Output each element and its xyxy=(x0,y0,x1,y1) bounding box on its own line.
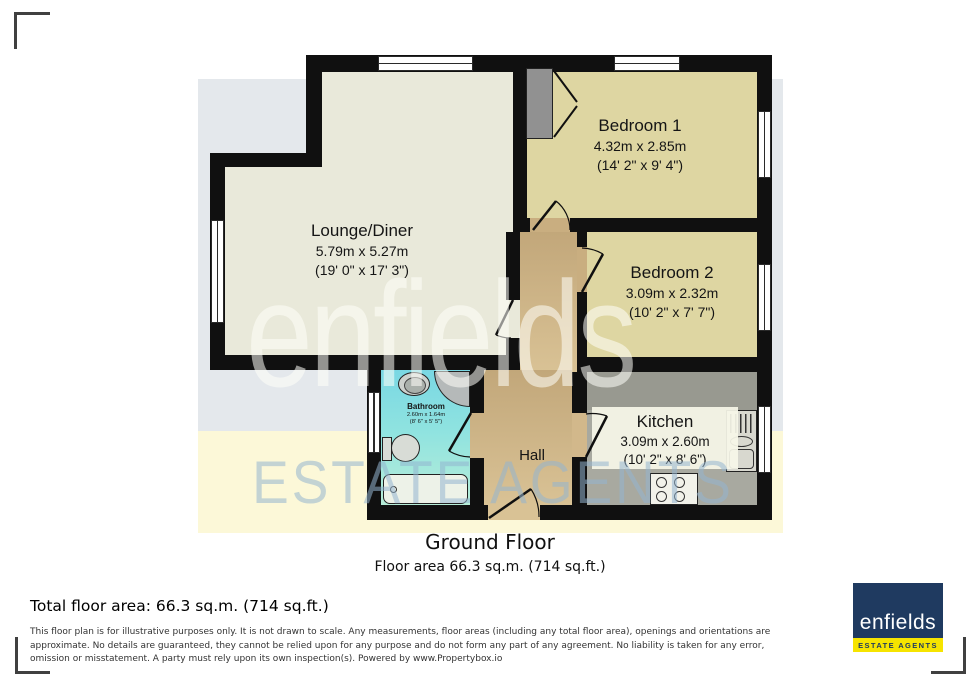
logo-yellow-strip: ESTATE AGENTS xyxy=(853,638,943,652)
room-dim-metric: 4.32m x 2.85m xyxy=(530,137,750,155)
room-dim-imperial: (10' 2" x 8' 6") xyxy=(592,451,738,469)
room-label-lounge: Lounge/Diner 5.79m x 5.27m (19' 0" x 17'… xyxy=(252,220,472,279)
room-name: Lounge/Diner xyxy=(252,220,472,242)
room-dim-metric: 2.60m x 1.64m xyxy=(386,412,466,419)
total-floor-area: Total floor area: 66.3 sq.m. (714 sq.ft.… xyxy=(30,597,329,615)
room-label-bedroom2: Bedroom 2 3.09m x 2.32m (10' 2" x 7' 7") xyxy=(572,262,772,321)
enfields-logo: enfields ESTATE AGENTS xyxy=(853,583,943,652)
floor-area-subtitle: Floor area 66.3 sq.m. (714 sq.ft.) xyxy=(0,559,980,575)
room-label-bathroom: Bathroom 2.60m x 1.64m (8' 6" x 5' 5") xyxy=(386,402,466,426)
room-name: Bedroom 2 xyxy=(572,262,772,284)
logo-tagline: ESTATE AGENTS xyxy=(858,641,938,650)
floor-title: Ground Floor xyxy=(0,530,980,554)
room-dim-metric: 5.79m x 5.27m xyxy=(252,242,472,260)
door-swing-lines xyxy=(0,0,980,685)
room-dim-imperial: (10' 2" x 7' 7") xyxy=(572,303,772,321)
logo-brand-name: enfields xyxy=(860,612,936,638)
room-label-bedroom1: Bedroom 1 4.32m x 2.85m (14' 2" x 9' 4") xyxy=(530,115,750,174)
room-name: Bathroom xyxy=(386,402,466,412)
disclaimer-text: This floor plan is for illustrative purp… xyxy=(30,626,800,667)
room-dim-imperial: (14' 2" x 9' 4") xyxy=(530,156,750,174)
logo-navy-panel: enfields xyxy=(853,583,943,638)
room-dim-imperial: (19' 0" x 17' 3") xyxy=(252,261,472,279)
room-name: Bedroom 1 xyxy=(530,115,750,137)
room-dim-metric: 3.09m x 2.60m xyxy=(592,433,738,451)
room-label-kitchen: Kitchen 3.09m x 2.60m (10' 2" x 8' 6") xyxy=(592,411,738,469)
room-name: Kitchen xyxy=(592,411,738,433)
room-dim-imperial: (8' 6" x 5' 5") xyxy=(386,419,466,426)
room-dim-metric: 3.09m x 2.32m xyxy=(572,284,772,302)
room-label-hall: Hall xyxy=(502,446,562,466)
